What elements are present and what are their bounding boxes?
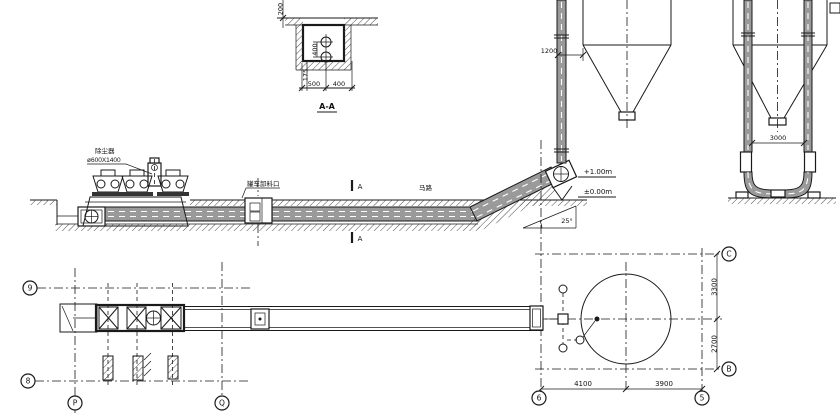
elevator-plan: [530, 285, 600, 352]
hopper-plan-3: [161, 307, 181, 329]
plan-left-view: 9 8 P Q: [21, 262, 543, 416]
dust-collector-name: 除尘器: [95, 146, 115, 155]
dim-4100-label: 4100: [574, 380, 592, 388]
section-marker-a-top: A: [358, 183, 363, 191]
silo-2: 3000: [728, 0, 840, 204]
corner-detail-box: [830, 3, 840, 13]
grid-label-9: 9: [28, 284, 33, 293]
engineering-drawing-canvas: 400 175 500 400 200 A-A: [0, 0, 840, 416]
plan-right-dims-side: 3300 2700: [711, 251, 721, 372]
silo-1-cone-left: [583, 45, 621, 112]
grid-bubble-8: 8: [21, 374, 35, 388]
discharge-point: [595, 317, 600, 322]
grid-bubble-6: 6: [532, 391, 546, 405]
hopper-unit-1: [92, 170, 124, 196]
section-aa-title: A-A: [319, 102, 336, 111]
unloading-port-label: 罐车卸料口: [247, 179, 280, 188]
dim-pipe-span: 3000: [749, 134, 807, 146]
section-aa-view: 400 175 500 400 200 A-A: [277, 0, 379, 112]
conveyor-duct: [105, 207, 478, 221]
grid-bubble-9: 9: [23, 281, 37, 295]
dim-3300-label: 3300: [711, 278, 719, 296]
feeder-plan-circle: [146, 311, 161, 325]
hopper-plan-2: [127, 307, 146, 329]
grid-label-p: P: [73, 399, 78, 408]
drive-station: [57, 207, 105, 226]
grid-bubble-5: 5: [695, 391, 709, 405]
pit-walls: [296, 25, 351, 70]
grid-label-8: 8: [26, 377, 31, 386]
grid-label-b: B: [726, 365, 731, 374]
dim-400-vertical: 400: [311, 43, 319, 55]
level-zero: ±0.00m: [584, 188, 612, 196]
plan-right-dims-bottom: 4100 3900: [538, 380, 705, 392]
grid-label-q: Q: [219, 399, 225, 408]
incline-angle-label: 25°: [561, 217, 573, 225]
dust-collector-size: ø600X1400: [87, 157, 121, 164]
road-label: 马路: [419, 183, 433, 192]
grid-bubble-p: P: [68, 396, 82, 410]
grid-bubble-b: B: [722, 362, 736, 376]
foundation-blocks: [103, 353, 178, 380]
dim-1200-label: 1200: [541, 47, 558, 55]
section-marker-a-bottom: A: [358, 235, 363, 243]
grid-label-c: C: [726, 250, 731, 259]
grid-bubble-c: C: [722, 247, 736, 261]
elevation-view: 除尘器 ø600X1400 罐车卸料口 A A 马路: [30, 0, 616, 246]
silo-1: [583, 0, 671, 128]
grid-label-6: 6: [537, 394, 542, 403]
hopper-plan-1: [99, 307, 118, 329]
hopper-unit-3: [157, 170, 189, 196]
dim-400-horizontal: 400: [333, 80, 345, 88]
riser-pipe: [554, 0, 569, 163]
equipment-plan: [60, 304, 184, 332]
loop-pipes: [736, 0, 820, 198]
level-marks: +1.00m ±0.00m: [578, 168, 616, 197]
silo-1-cone-right: [633, 45, 671, 112]
dim-200: 200: [277, 3, 285, 15]
dim-2700-label: 2700: [711, 335, 719, 353]
grid-label-5: 5: [700, 394, 705, 403]
slope-annotation: 25°: [523, 206, 576, 228]
dim-3900-label: 3900: [655, 380, 673, 388]
level-plus-100: +1.00m: [584, 168, 612, 176]
dim-3000-label: 3000: [770, 134, 787, 142]
conveyor-plan: [184, 307, 543, 331]
grid-bubble-q: Q: [215, 396, 229, 410]
dim-500: 500: [308, 80, 320, 88]
unloading-port-plan: [251, 309, 269, 329]
